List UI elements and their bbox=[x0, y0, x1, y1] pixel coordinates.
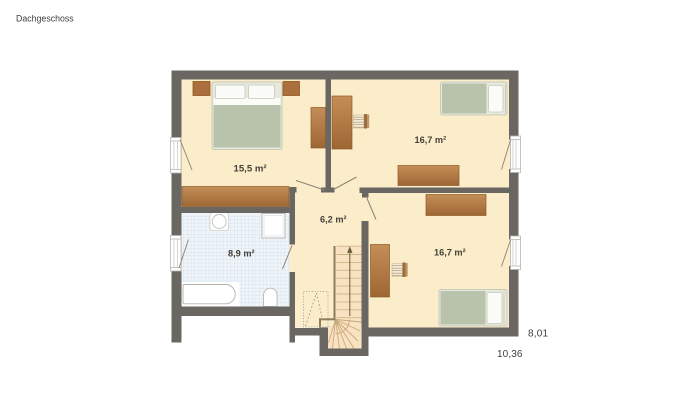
svg-text:8,9 m²: 8,9 m² bbox=[228, 249, 255, 259]
svg-text:16,7 m²: 16,7 m² bbox=[434, 248, 466, 258]
svg-text:8,01: 8,01 bbox=[528, 329, 549, 340]
svg-text:10,36: 10,36 bbox=[497, 349, 523, 360]
svg-text:16,7 m²: 16,7 m² bbox=[415, 135, 447, 145]
svg-text:Dachgeschoss: Dachgeschoss bbox=[16, 14, 74, 24]
svg-text:6,2 m²: 6,2 m² bbox=[320, 215, 347, 225]
svg-text:15,5 m²: 15,5 m² bbox=[234, 163, 267, 174]
